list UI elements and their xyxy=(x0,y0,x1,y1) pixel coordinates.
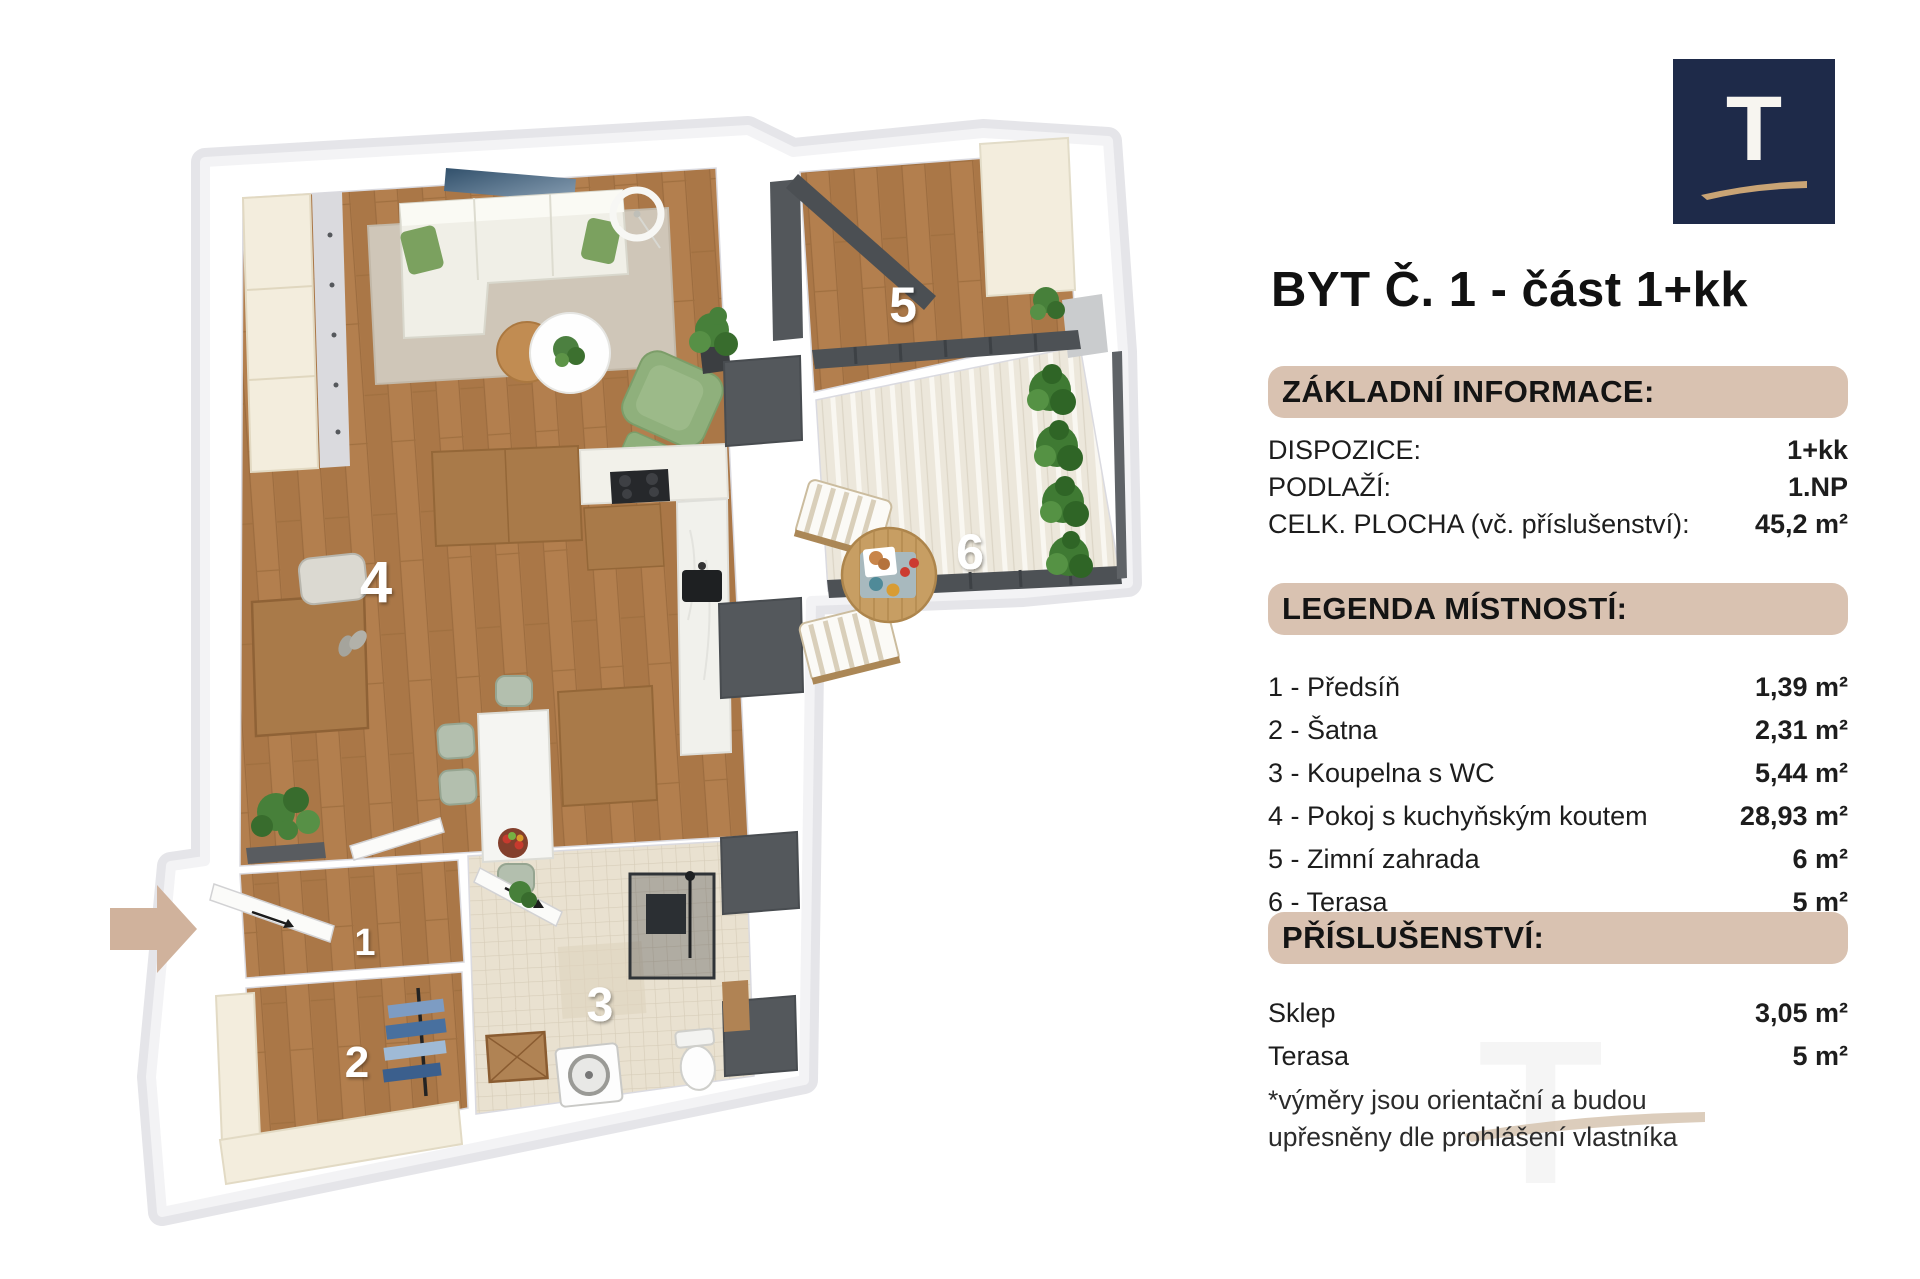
brand-logo: T xyxy=(1673,59,1835,224)
accessory-value: 5 m² xyxy=(1792,1041,1848,1072)
legend-label: 1 - Předsíň xyxy=(1268,672,1400,703)
info-value: 1+kk xyxy=(1787,435,1848,466)
washer-icon xyxy=(555,1043,623,1107)
room-label-5: 5 xyxy=(889,277,917,333)
legend-label: 5 - Zimní zahrada xyxy=(1268,844,1480,875)
legend-value: 6 m² xyxy=(1792,844,1848,875)
room-label-1: 1 xyxy=(354,922,375,964)
info-label: PODLAŽÍ: xyxy=(1268,472,1391,503)
legend-row: 4 - Pokoj s kuchyňským koutem 28,93 m² xyxy=(1268,795,1848,838)
kitchen-sink-icon xyxy=(682,570,722,602)
legend-row: 1 - Předsíň 1,39 m² xyxy=(1268,666,1848,709)
brand-logo-underline-icon xyxy=(1673,59,1835,224)
section-accessories-heading: PŘÍSLUŠENSTVÍ: xyxy=(1282,920,1544,956)
accessory-label: Sklep xyxy=(1268,998,1336,1029)
section-basic-info: ZÁKLADNÍ INFORMACE: xyxy=(1268,366,1848,418)
room-label-3: 3 xyxy=(587,979,614,1032)
legend-label: 2 - Šatna xyxy=(1268,715,1378,746)
cooktop-icon xyxy=(610,469,670,504)
info-row: PODLAŽÍ: 1.NP xyxy=(1268,469,1848,506)
laundry-basket-icon xyxy=(486,1032,547,1082)
room-label-4: 4 xyxy=(360,550,392,615)
disclaimer-line: *výměry jsou orientační a budou xyxy=(1268,1082,1848,1119)
info-label: CELK. PLOCHA (vč. příslušenství): xyxy=(1268,509,1690,540)
section-legend-heading: LEGENDA MÍSTNOSTÍ: xyxy=(1282,591,1627,627)
legend-label: 4 - Pokoj s kuchyňským koutem xyxy=(1268,801,1648,832)
section-accessories: PŘÍSLUŠENSTVÍ: xyxy=(1268,912,1848,964)
page-title: BYT Č. 1 - část 1+kk xyxy=(1271,262,1871,318)
disclaimer-line: upřesněny dle prohlášení vlastníka xyxy=(1268,1119,1848,1156)
legend-value: 28,93 m² xyxy=(1740,801,1848,832)
page: 1 2 3 4 5 6 T T BYT Č. 1 - část 1+kk ZÁK… xyxy=(0,0,1920,1279)
info-row: CELK. PLOCHA (vč. příslušenství): 45,2 m… xyxy=(1268,506,1848,543)
info-label: DISPOZICE: xyxy=(1268,435,1421,466)
shelf xyxy=(722,980,750,1032)
room-label-2: 2 xyxy=(345,1038,369,1087)
legend-value: 5,44 m² xyxy=(1755,758,1848,789)
disclaimer-note: *výměry jsou orientační a budou upřesněn… xyxy=(1268,1082,1848,1156)
section-basic-info-heading: ZÁKLADNÍ INFORMACE: xyxy=(1282,374,1655,410)
cabinet xyxy=(980,138,1075,296)
section-legend: LEGENDA MÍSTNOSTÍ: xyxy=(1268,583,1848,635)
accessory-value: 3,05 m² xyxy=(1755,998,1848,1029)
legend-row: 3 - Koupelna s WC 5,44 m² xyxy=(1268,752,1848,795)
terrace-table xyxy=(842,528,936,622)
legend-value: 2,31 m² xyxy=(1755,715,1848,746)
wardrobe xyxy=(243,192,350,472)
legend-row: 2 - Šatna 2,31 m² xyxy=(1268,709,1848,752)
legend-value: 1,39 m² xyxy=(1755,672,1848,703)
info-row: DISPOZICE: 1+kk xyxy=(1268,432,1848,469)
accessory-row: Sklep 3,05 m² xyxy=(1268,992,1848,1035)
info-value: 45,2 m² xyxy=(1755,509,1848,540)
glass-wall xyxy=(770,179,803,341)
coffee-table-white xyxy=(530,313,610,393)
accessory-label: Terasa xyxy=(1268,1041,1349,1072)
accessory-row: Terasa 5 m² xyxy=(1268,1035,1848,1078)
kitchen-island xyxy=(558,686,657,806)
info-value: 1.NP xyxy=(1788,472,1848,503)
legend-row: 5 - Zimní zahrada 6 m² xyxy=(1268,838,1848,881)
room-label-6: 6 xyxy=(956,524,984,580)
legend-label: 3 - Koupelna s WC xyxy=(1268,758,1495,789)
